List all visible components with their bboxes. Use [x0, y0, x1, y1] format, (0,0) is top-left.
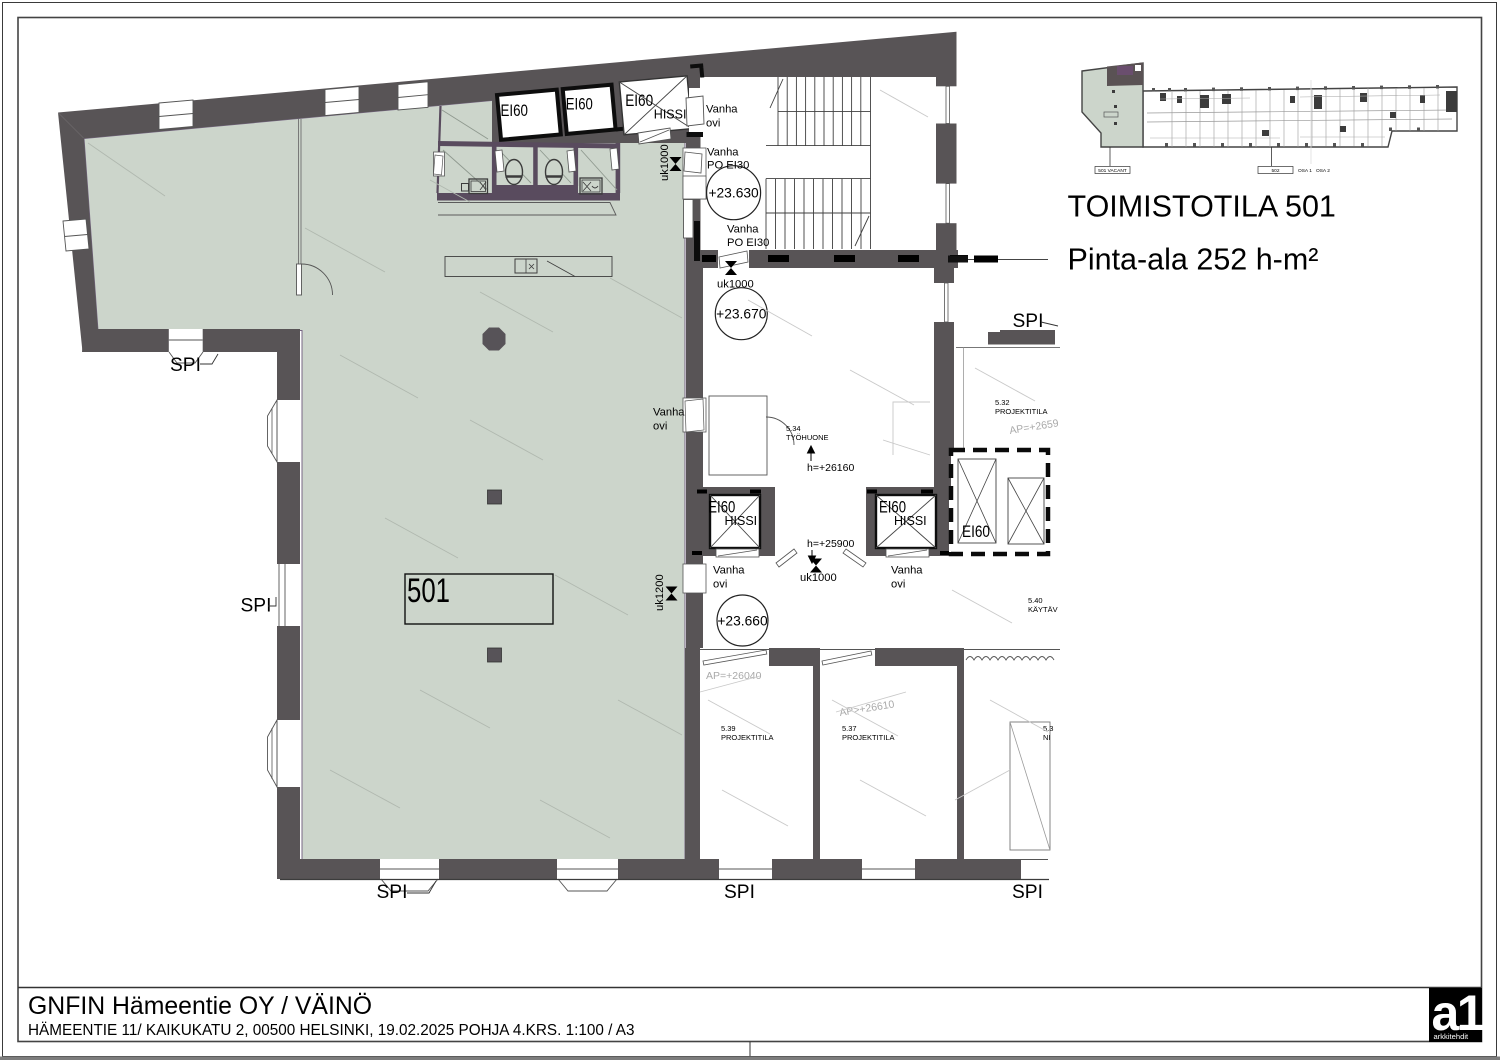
svg-text:TOIMISTOTILA 501: TOIMISTOTILA 501 — [1068, 190, 1336, 224]
svg-text:SPI: SPI — [1013, 311, 1044, 332]
svg-text:Vanha: Vanha — [706, 104, 738, 116]
svg-text:5.40: 5.40 — [1028, 596, 1043, 605]
svg-text:KÄYTÄV: KÄYTÄV — [1028, 605, 1058, 614]
svg-text:SPI: SPI — [377, 882, 408, 903]
svg-text:ovi: ovi — [713, 579, 727, 591]
svg-text:SPI: SPI — [170, 355, 201, 376]
svg-text:OSA 2: OSA 2 — [1316, 168, 1330, 174]
svg-text:Vanha: Vanha — [707, 147, 739, 159]
svg-text:5.32: 5.32 — [995, 398, 1010, 407]
svg-text:Vanha: Vanha — [653, 407, 685, 419]
svg-text:GNFIN Hämeentie OY / VÄINÖ: GNFIN Hämeentie OY / VÄINÖ — [28, 993, 372, 1020]
svg-text:AP=+26040: AP=+26040 — [706, 670, 762, 682]
svg-text:ovi: ovi — [706, 118, 720, 130]
svg-text:uk1000: uk1000 — [800, 572, 837, 584]
svg-text:Vanha: Vanha — [727, 224, 759, 236]
svg-text:OSA 1: OSA 1 — [1298, 168, 1312, 174]
svg-text:502: 502 — [1271, 168, 1279, 174]
svg-text:PO EI30: PO EI30 — [707, 160, 749, 172]
svg-text:5.37: 5.37 — [842, 724, 857, 733]
svg-text:ovi: ovi — [891, 579, 905, 591]
svg-text:+23.630: +23.630 — [708, 186, 759, 201]
svg-text:Pinta-ala 252 h-m²: Pinta-ala 252 h-m² — [1068, 243, 1319, 277]
svg-text:SPI: SPI — [724, 882, 755, 903]
svg-text:+23.660: +23.660 — [717, 614, 768, 629]
svg-text:SPI: SPI — [241, 596, 272, 617]
svg-text:ovi: ovi — [653, 421, 667, 433]
svg-text:EI60: EI60 — [625, 91, 653, 110]
svg-text:arkkitehdit: arkkitehdit — [1434, 1032, 1469, 1041]
svg-text:EI60: EI60 — [566, 95, 593, 114]
svg-text:EI60: EI60 — [501, 101, 529, 120]
svg-text:HISSI: HISSI — [654, 107, 687, 121]
svg-text:501 VACANT: 501 VACANT — [1098, 168, 1127, 174]
svg-text:5.39: 5.39 — [721, 724, 736, 733]
svg-text:PROJEKTITILA: PROJEKTITILA — [995, 407, 1048, 416]
svg-text:5.3: 5.3 — [1043, 724, 1053, 733]
svg-text:Vanha: Vanha — [891, 565, 923, 577]
svg-text:uk1000: uk1000 — [717, 279, 754, 291]
svg-text:PROJEKTITILA: PROJEKTITILA — [842, 733, 895, 742]
svg-text:+23.670: +23.670 — [716, 307, 767, 322]
svg-text:PROJEKTITILA: PROJEKTITILA — [721, 733, 774, 742]
svg-text:HISSI: HISSI — [894, 514, 927, 528]
svg-text:Vanha: Vanha — [713, 565, 745, 577]
svg-text:NI: NI — [1043, 733, 1051, 742]
svg-text:501: 501 — [407, 572, 450, 610]
svg-text:EI60: EI60 — [962, 522, 990, 541]
svg-text:h=+25900: h=+25900 — [807, 538, 854, 550]
svg-text:SPI: SPI — [1012, 882, 1043, 903]
svg-text:5.34: 5.34 — [786, 424, 801, 433]
svg-text:TYÖHUONE: TYÖHUONE — [786, 433, 829, 442]
svg-text:HISSI: HISSI — [725, 514, 758, 528]
svg-text:h=+26160: h=+26160 — [807, 462, 854, 474]
svg-text:uk1000: uk1000 — [659, 144, 671, 181]
svg-text:uk1200: uk1200 — [654, 574, 666, 611]
svg-text:HÄMEENTIE 11/ KAIKUKATU 2, 005: HÄMEENTIE 11/ KAIKUKATU 2, 00500 HELSINK… — [28, 1022, 635, 1039]
svg-text:PO EI30: PO EI30 — [727, 237, 769, 249]
